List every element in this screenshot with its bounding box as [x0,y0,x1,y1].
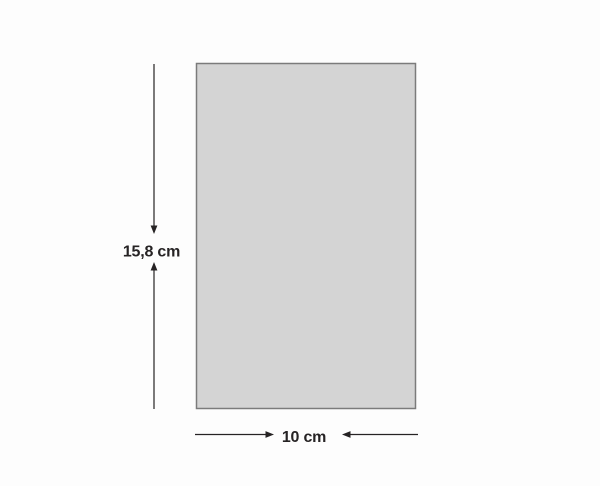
width-dimension-label: 10 cm [282,429,326,446]
height-dimension-label: 15,8 cm [123,244,180,261]
dimension-diagram: 15,8 cm 10 cm [0,0,600,486]
diagram-svg: 15,8 cm 10 cm [0,0,600,486]
measured-rectangle [197,64,416,409]
